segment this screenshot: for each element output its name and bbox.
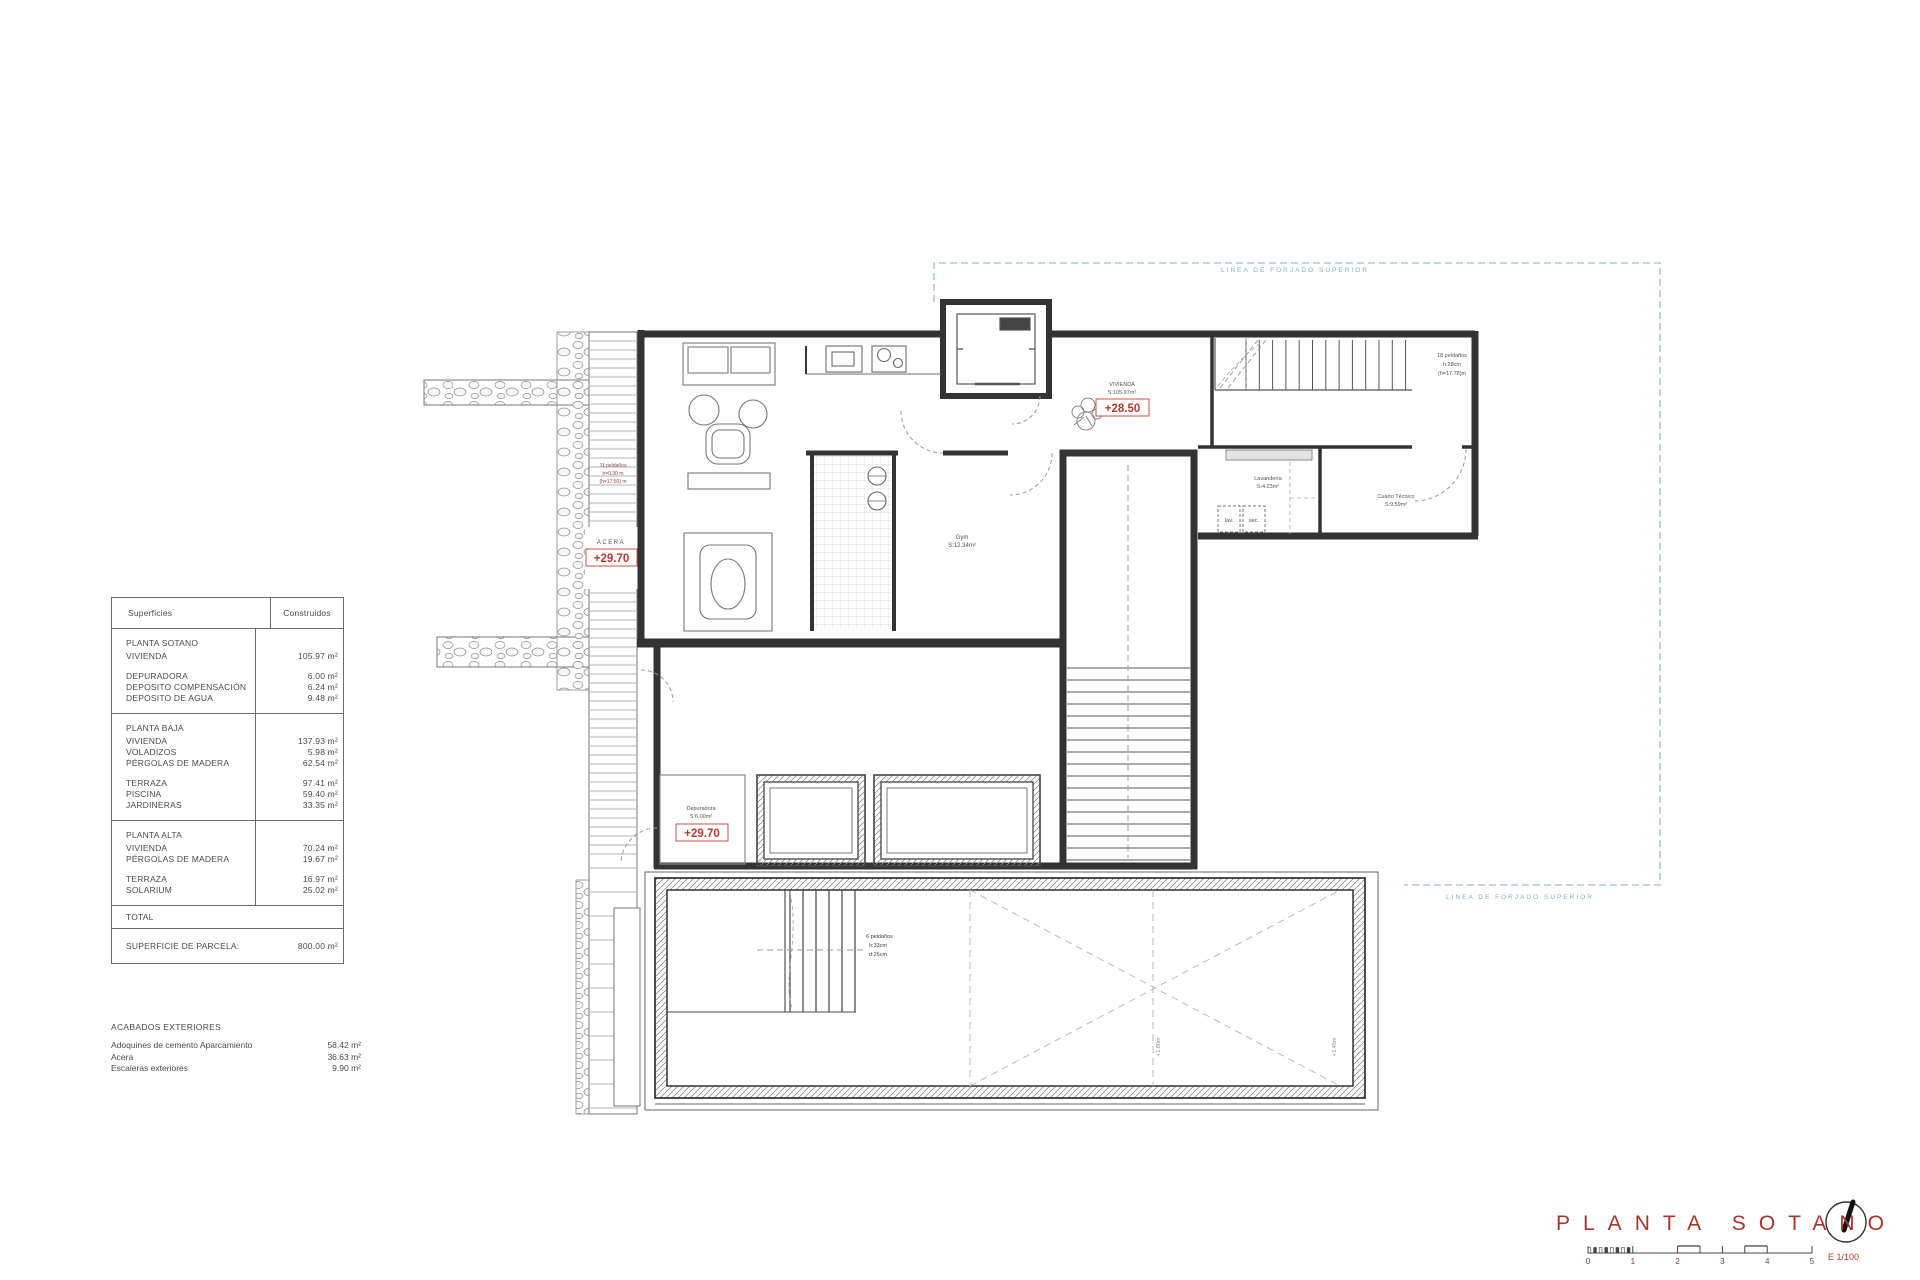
dryer-label: sec. [1249, 518, 1260, 524]
row-value: 137.93 m² [263, 736, 343, 747]
stair-note-acera: 11 peldaños h=0.30 m (h=17.50) m [599, 463, 626, 485]
row-value: 59.40 m² [263, 789, 343, 800]
parcel-value: 800.00 m² [263, 941, 343, 951]
scale-tick-labels: 0 1 2 3 4 5 [1586, 1257, 1815, 1266]
scale-ratio-label: E 1/100 [1828, 1252, 1859, 1262]
laundry-area: S:4.23m² [1257, 484, 1279, 490]
elevator-motor-icon [1000, 318, 1030, 330]
svg-text:(h=17.78)m: (h=17.78)m [1438, 371, 1467, 377]
water-tanks [757, 775, 1040, 866]
svg-text:3: 3 [1720, 1257, 1725, 1266]
table-row: PÉRGOLAS DE MADERA62.54 m² [112, 758, 343, 769]
acabados-title: ACABADOS EXTERIORES [111, 1022, 361, 1032]
table-row: VOLADIZOS5.98 m² [112, 747, 343, 758]
row-value: 19.67 m² [263, 854, 343, 865]
row-value: 25.02 m² [263, 885, 343, 896]
row-value: 16.97 m² [263, 874, 343, 885]
svg-text:d:26cm: d:26cm [869, 952, 887, 958]
table-section: PLANTA ALTAVIVIENDA70.24 m²PÉRGOLAS DE M… [112, 821, 343, 906]
acabados-label: Adoquines de cemento Aparcamiento [111, 1040, 252, 1052]
acabados-row: Escaleras exteriores9.90 m² [111, 1063, 361, 1075]
hob-burner-icon [878, 349, 891, 362]
techroom-label: Cuarto Técnico [1377, 494, 1414, 500]
table-row: VIVIENDA105.97 m² [112, 651, 343, 662]
hob-burner-icon [894, 359, 903, 368]
scale-comb [1588, 1248, 1630, 1254]
row-label: DEPOSITO COMPENSACIÓN [112, 682, 263, 693]
bathroom [814, 456, 892, 629]
acabados-value: 9.90 m² [332, 1063, 361, 1075]
table-row: PISCINA59.40 m² [112, 789, 343, 800]
svg-text:4: 4 [1765, 1257, 1770, 1266]
laundry-fittings: lav. sec. [1218, 450, 1318, 534]
col-header-superficies: Superficies [112, 608, 270, 618]
parcel-row: SUPERFICIE DE PARCELA: 800.00 m² [112, 929, 343, 963]
row-value: 9.48 m² [263, 693, 343, 704]
row-label: SOLARIUM [112, 885, 263, 896]
table-row: JARDINERAS33.35 m² [112, 800, 343, 811]
acabados-block: ACABADOS EXTERIORES Adoquines de cemento… [111, 1022, 361, 1075]
sideboard-icon [688, 473, 770, 489]
row-label: VIVIENDA [112, 651, 263, 662]
sofa-icon [683, 343, 775, 385]
kitchen-counter [806, 346, 941, 374]
chair-icon [689, 395, 719, 425]
sink-icon [832, 352, 854, 366]
table-row: DEPOSITO COMPENSACIÓN6.24 m² [112, 682, 343, 693]
table-row: DEPURADORA6.00 m² [112, 671, 343, 682]
stair-note-upper: 18 peldaños h:28cm (h=17.78)m [1437, 353, 1467, 377]
lounge-area [684, 533, 772, 631]
acabados-row: Acera36.63 m² [111, 1052, 361, 1064]
gym-area: S:12.34m² [948, 543, 976, 549]
row-value: 5.98 m² [263, 747, 343, 758]
table-row: PÉRGOLAS DE MADERA19.67 m² [112, 854, 343, 865]
vivienda-label: VIVIENDA [1109, 382, 1135, 388]
svg-text:2: 2 [1675, 1257, 1680, 1266]
svg-text:18 peldaños: 18 peldaños [1437, 353, 1467, 359]
acabados-value: 36.63 m² [327, 1052, 361, 1064]
door-arcs [641, 396, 1466, 702]
techroom-area: S:9.59m² [1385, 502, 1407, 508]
svg-text:h:28cm: h:28cm [1443, 362, 1461, 368]
svg-text:11 peldaños: 11 peldaños [600, 463, 627, 469]
acabados-value: 58.42 m² [327, 1040, 361, 1052]
depuradora-label: Depuradora [686, 806, 716, 812]
svg-text:6 peldaños: 6 peldaños [866, 934, 893, 940]
sheet-title: PLANTA SOTANO [1556, 1212, 1856, 1236]
acabados-label: Escaleras exteriores [111, 1063, 188, 1075]
svg-text:5: 5 [1810, 1257, 1815, 1266]
table-section-title: PLANTA BAJA [112, 721, 343, 736]
acabados-label: Acera [111, 1052, 133, 1064]
laundry-label: Lavandería [1254, 476, 1282, 482]
washer-label: lav. [1225, 518, 1234, 524]
surfaces-table-header: Superficies Construidos [112, 598, 343, 629]
garage-mark-1: +1.90m [1156, 1037, 1162, 1056]
surfaces-table: Superficies Construidos PLANTA SOTANOVIV… [111, 597, 344, 964]
elevator [957, 314, 1035, 384]
row-label: TERRAZA [112, 778, 263, 789]
depuradora-area: S:6.00m² [690, 814, 712, 820]
forjado-label-bottom: LINEA DE FORJADO SUPERIOR [1446, 894, 1594, 901]
row-label: VOLADIZOS [112, 747, 263, 758]
acera-label: ACERA [597, 540, 625, 546]
row-value: 105.97 m² [263, 651, 343, 662]
row-value: 97.41 m² [263, 778, 343, 789]
table-row: SOLARIUM25.02 m² [112, 885, 343, 896]
chaise-icon [700, 545, 756, 619]
parcel-label: SUPERFICIE DE PARCELA: [112, 941, 263, 951]
forjado-label-top: LINEA DE FORJADO SUPERIOR [1221, 267, 1369, 274]
svg-text:h:33cm: h:33cm [869, 943, 887, 949]
level-29-70-acera: +29.70 [594, 553, 630, 565]
vivienda-area: S:105.97m² [1108, 390, 1137, 396]
chair-icon [739, 400, 767, 428]
stair-shaft [1067, 465, 1190, 860]
staircase-upper [1215, 338, 1412, 390]
stone-retaining-walls [424, 332, 616, 1114]
living-furniture [683, 343, 775, 631]
acabados-row: Adoquines de cemento Aparcamiento58.42 m… [111, 1040, 361, 1052]
table-row: TERRAZA97.41 m² [112, 778, 343, 789]
table-section: PLANTA BAJAVIVIENDA137.93 m²VOLADIZOS5.9… [112, 714, 343, 821]
level-28-50: +28.50 [1105, 403, 1141, 415]
row-label: DEPURADORA [112, 671, 263, 682]
col-header-construidos: Construidos [270, 598, 343, 628]
row-label: VIVIENDA [112, 843, 263, 854]
level-29-70-dep: +29.70 [684, 828, 720, 840]
gym-label: Gym [956, 535, 969, 541]
row-value: 6.00 m² [263, 671, 343, 682]
table-row: TERRAZA16.97 m² [112, 874, 343, 885]
row-label: PISCINA [112, 789, 263, 800]
total-row: TOTAL [112, 906, 343, 929]
table-section-title: PLANTA SOTANO [112, 636, 343, 651]
table-row: VIVIENDA137.93 m² [112, 736, 343, 747]
row-label: VIVIENDA [112, 736, 263, 747]
table-section-title: PLANTA ALTA [112, 828, 343, 843]
row-label: PÉRGOLAS DE MADERA [112, 758, 263, 769]
row-label: PÉRGOLAS DE MADERA [112, 854, 263, 865]
table-row: DEPOSITO DE AGUA9.48 m² [112, 693, 343, 704]
svg-text:0: 0 [1586, 1257, 1591, 1266]
row-value: 33.35 m² [263, 800, 343, 811]
depuradora-room [621, 775, 745, 864]
drawing-sheet: LINEA DE FORJADO SUPERIOR LINEA DE FORJA… [0, 0, 1920, 1280]
row-value: 70.24 m² [263, 843, 343, 854]
forjado-dashed-outline [934, 263, 1660, 885]
row-label: JARDINERAS [112, 800, 263, 811]
row-value: 6.24 m² [263, 682, 343, 693]
row-label: TERRAZA [112, 874, 263, 885]
garage-mark-2: +1.45m [1332, 1037, 1338, 1056]
row-label: DEPOSITO DE AGUA [112, 693, 263, 704]
table-section: PLANTA SOTANOVIVIENDA105.97 m²DEPURADORA… [112, 629, 343, 714]
garage: +1.90m +1.45m [614, 872, 1378, 1110]
row-value: 62.54 m² [263, 758, 343, 769]
table-row: VIVIENDA70.24 m² [112, 843, 343, 854]
svg-text:1: 1 [1631, 1257, 1636, 1266]
svg-text:(h=17.50) m: (h=17.50) m [599, 479, 626, 485]
scale-bar: 0 1 2 3 4 5 E 1/100 [1586, 1246, 1859, 1266]
svg-text:h=0.30 m: h=0.30 m [603, 471, 624, 477]
